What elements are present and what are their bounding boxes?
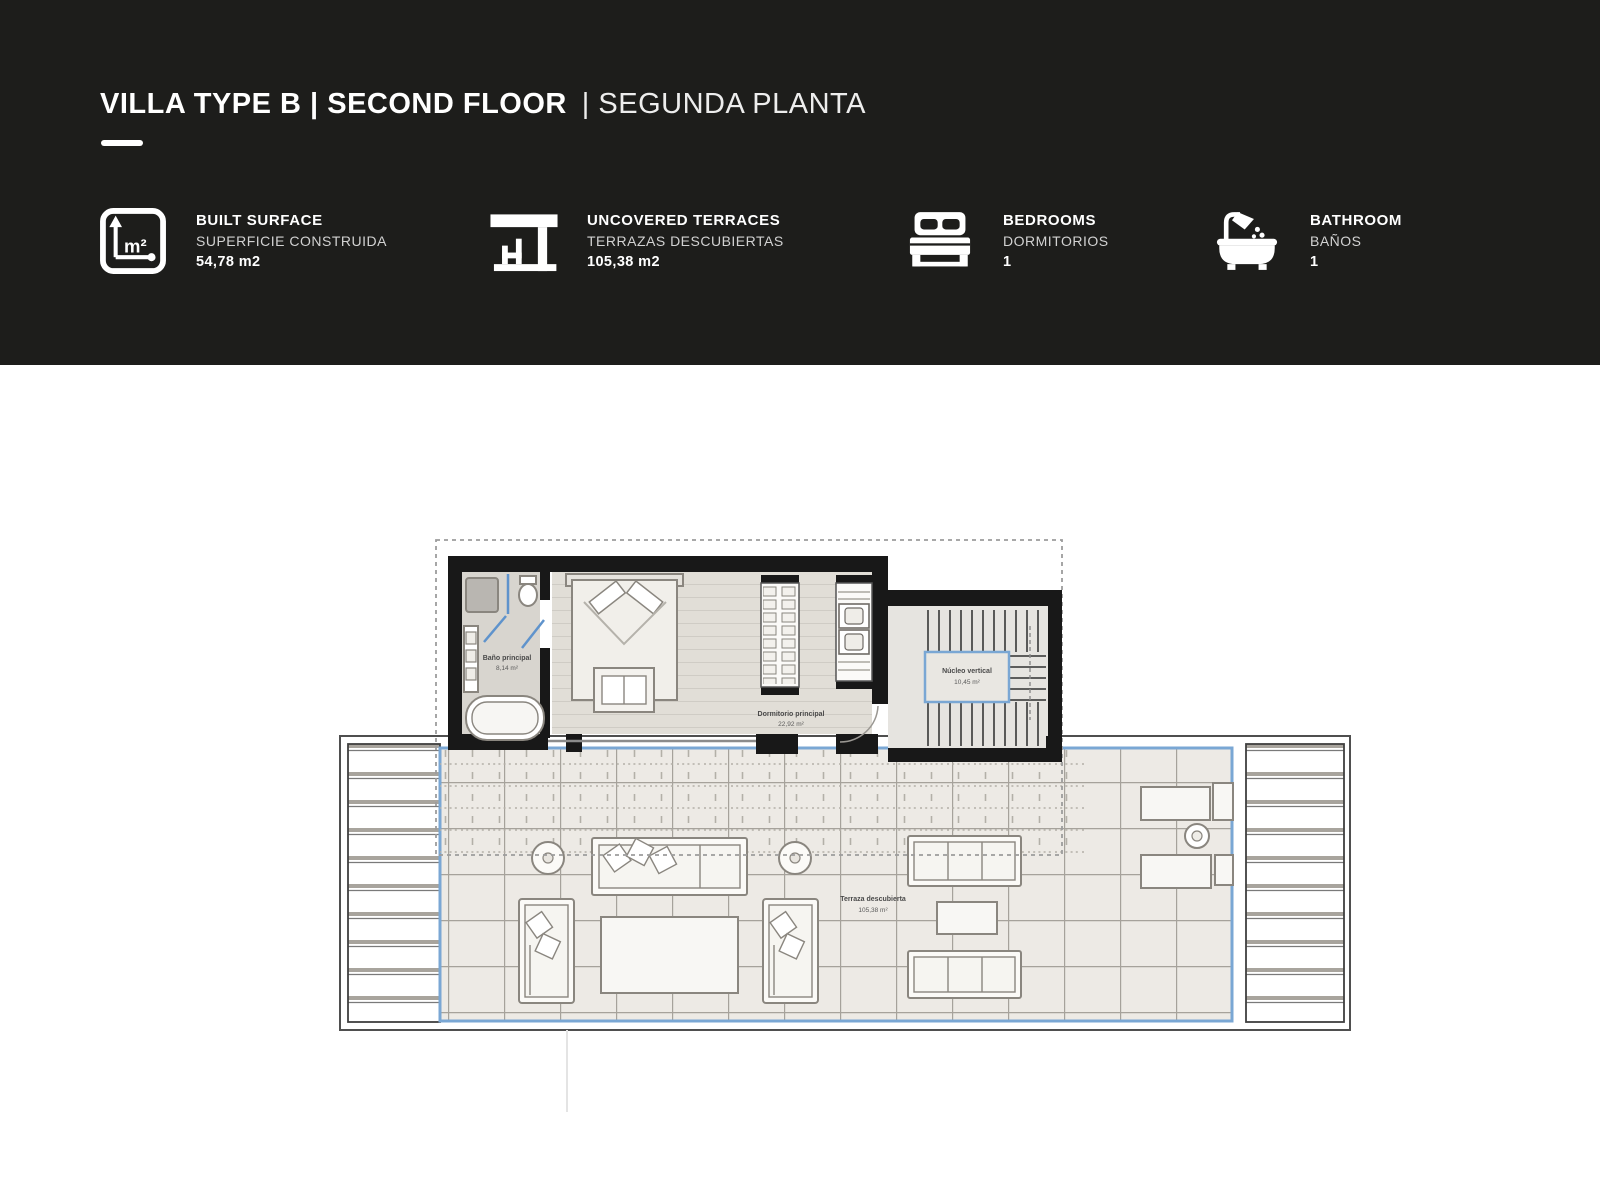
sun-lounger-right (763, 899, 818, 1003)
room-area-stair-core: 10,45 m² (954, 679, 980, 686)
left-louver-deck (348, 744, 440, 1022)
room-area-bathroom: 8,14 m² (496, 665, 519, 672)
room-label-bedroom: Dormitorio principal (758, 711, 825, 718)
laundry-column (836, 575, 872, 689)
room-label-stair-core: Núcleo vertical (942, 668, 992, 675)
right-louver-deck (1246, 744, 1344, 1022)
shower-tray (466, 578, 498, 612)
sun-lounger-left (519, 899, 574, 1003)
brochure-page: VILLA TYPE B | SECOND FLOOR | SEGUNDA PL… (0, 0, 1600, 1179)
upper-floor (448, 556, 1062, 762)
stair-label-box (925, 652, 1009, 702)
floorplan-svg: Baño principal 8,14 m² Dormitorio princi… (0, 0, 1600, 1179)
room-area-terrace: 105,38 m² (858, 907, 888, 914)
room-area-bedroom: 22,92 m² (778, 721, 804, 728)
toilet (519, 584, 537, 606)
terrace (340, 736, 1350, 1030)
lounge-sofa-bottom (908, 951, 1021, 998)
coffee-table (937, 902, 997, 934)
toilet-tank (520, 576, 536, 584)
terrace-table (601, 917, 738, 993)
lounge-sofa-top (908, 836, 1021, 886)
daybed-sofa (592, 838, 747, 895)
room-label-bathroom: Baño principal (483, 655, 532, 662)
room-label-terrace: Terraza descubierta (840, 896, 906, 903)
bed (566, 574, 683, 712)
wardrobe (761, 575, 799, 695)
